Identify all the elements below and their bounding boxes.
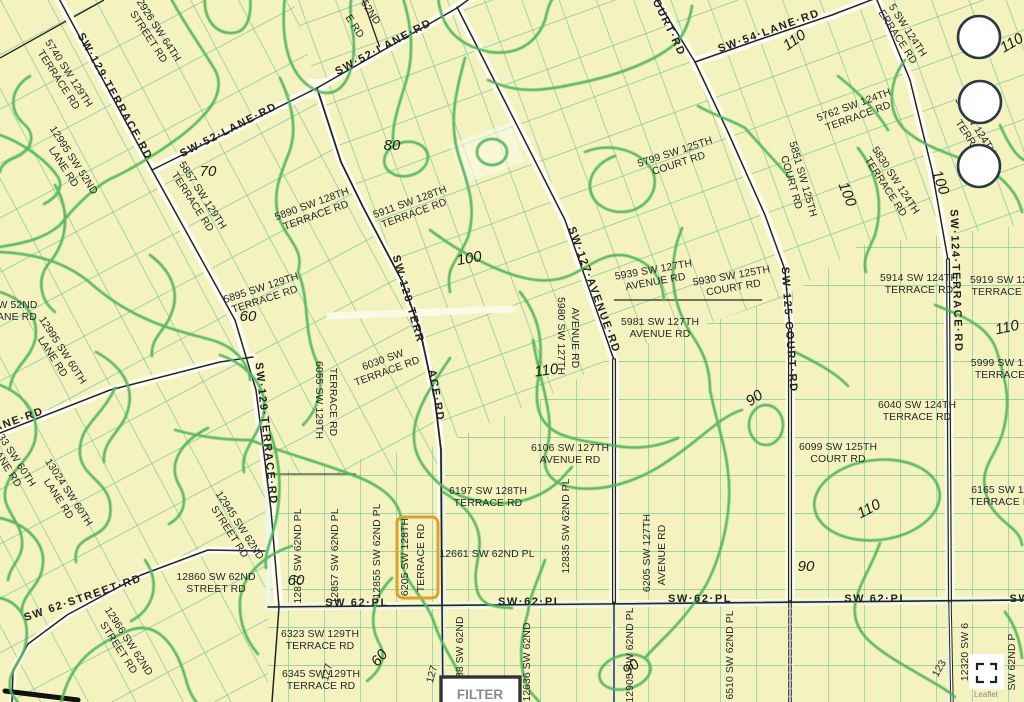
svg-text:6197 SW 128THTERRACE RD: 6197 SW 128THTERRACE RD: [449, 486, 527, 509]
svg-text:80: 80: [384, 137, 401, 154]
svg-text:12636 SW 62ND: 12636 SW 62ND: [522, 622, 533, 701]
svg-text:12857 SW 62ND PL: 12857 SW 62ND PL: [330, 508, 341, 603]
svg-text:12661 SW 62ND PL: 12661 SW 62ND PL: [439, 549, 534, 560]
svg-text:SW: SW: [1010, 593, 1024, 605]
svg-text:AVENUE RD: AVENUE RD: [657, 525, 668, 586]
svg-text:12835 SW 62ND PL: 12835 SW 62ND PL: [561, 478, 572, 573]
svg-text:TERRACE RD: TERRACE RD: [416, 524, 427, 593]
svg-text:60: 60: [288, 572, 305, 589]
svg-text:AVENUE RD: AVENUE RD: [569, 308, 580, 369]
svg-text:FILTER: FILTER: [457, 687, 503, 702]
svg-text:5999 SW 12TERRACE: 5999 SW 12TERRACE: [971, 358, 1024, 381]
svg-text:90: 90: [798, 558, 815, 575]
svg-text:12877 SW 62ND PL: 12877 SW 62ND PL: [293, 508, 304, 603]
svg-text:6323 SW 129THTERRACE RD: 6323 SW 129THTERRACE RD: [281, 629, 359, 652]
svg-text:SW·62·PL: SW·62·PL: [668, 593, 732, 605]
svg-text:110: 110: [533, 360, 560, 380]
svg-text:60: 60: [240, 308, 257, 325]
svg-text:6205 SW 128TH: 6205 SW 128TH: [400, 518, 411, 596]
svg-text:6510 SW 62ND PL: 6510 SW 62ND PL: [725, 610, 736, 699]
svg-text:SW 62ND P: SW 62ND P: [1007, 634, 1018, 691]
svg-text:SW 52NDLANE RD: SW 52NDLANE RD: [0, 300, 37, 323]
svg-text:70: 70: [200, 163, 217, 180]
svg-text:6099 SW 125THCOURT RD: 6099 SW 125THCOURT RD: [799, 442, 877, 465]
svg-text:12860 SW 62NDSTREET RD: 12860 SW 62NDSTREET RD: [176, 572, 255, 595]
svg-text:5914 SW 124THTERRACE RD: 5914 SW 124THTERRACE RD: [880, 273, 958, 296]
svg-text:Leaflet: Leaflet: [974, 690, 999, 699]
svg-text:5981 SW 127THAVENUE RD: 5981 SW 127THAVENUE RD: [621, 317, 699, 340]
svg-text:6040 SW 124THTERRACE RD: 6040 SW 124THTERRACE RD: [878, 400, 956, 423]
svg-text:6205 SW 127TH: 6205 SW 127TH: [642, 514, 653, 592]
svg-text:12905 SW 62ND PL: 12905 SW 62ND PL: [625, 607, 636, 702]
svg-text:5919 SW 124TERRACE R: 5919 SW 124TERRACE R: [970, 275, 1024, 298]
svg-text:SW·62·PL: SW·62·PL: [498, 596, 562, 608]
svg-text:6106 SW 127THAVENUE RD: 6106 SW 127THAVENUE RD: [531, 443, 609, 466]
svg-text:TERRACE RD: TERRACE RD: [327, 368, 338, 437]
svg-text:SW 62·PL: SW 62·PL: [844, 593, 908, 605]
svg-text:6055 SW 129TH: 6055 SW 129TH: [313, 361, 324, 439]
svg-text:12855 SW 62ND PL: 12855 SW 62ND PL: [372, 503, 383, 598]
svg-text:6165 SW 11TERRACE R: 6165 SW 11TERRACE R: [970, 485, 1024, 508]
